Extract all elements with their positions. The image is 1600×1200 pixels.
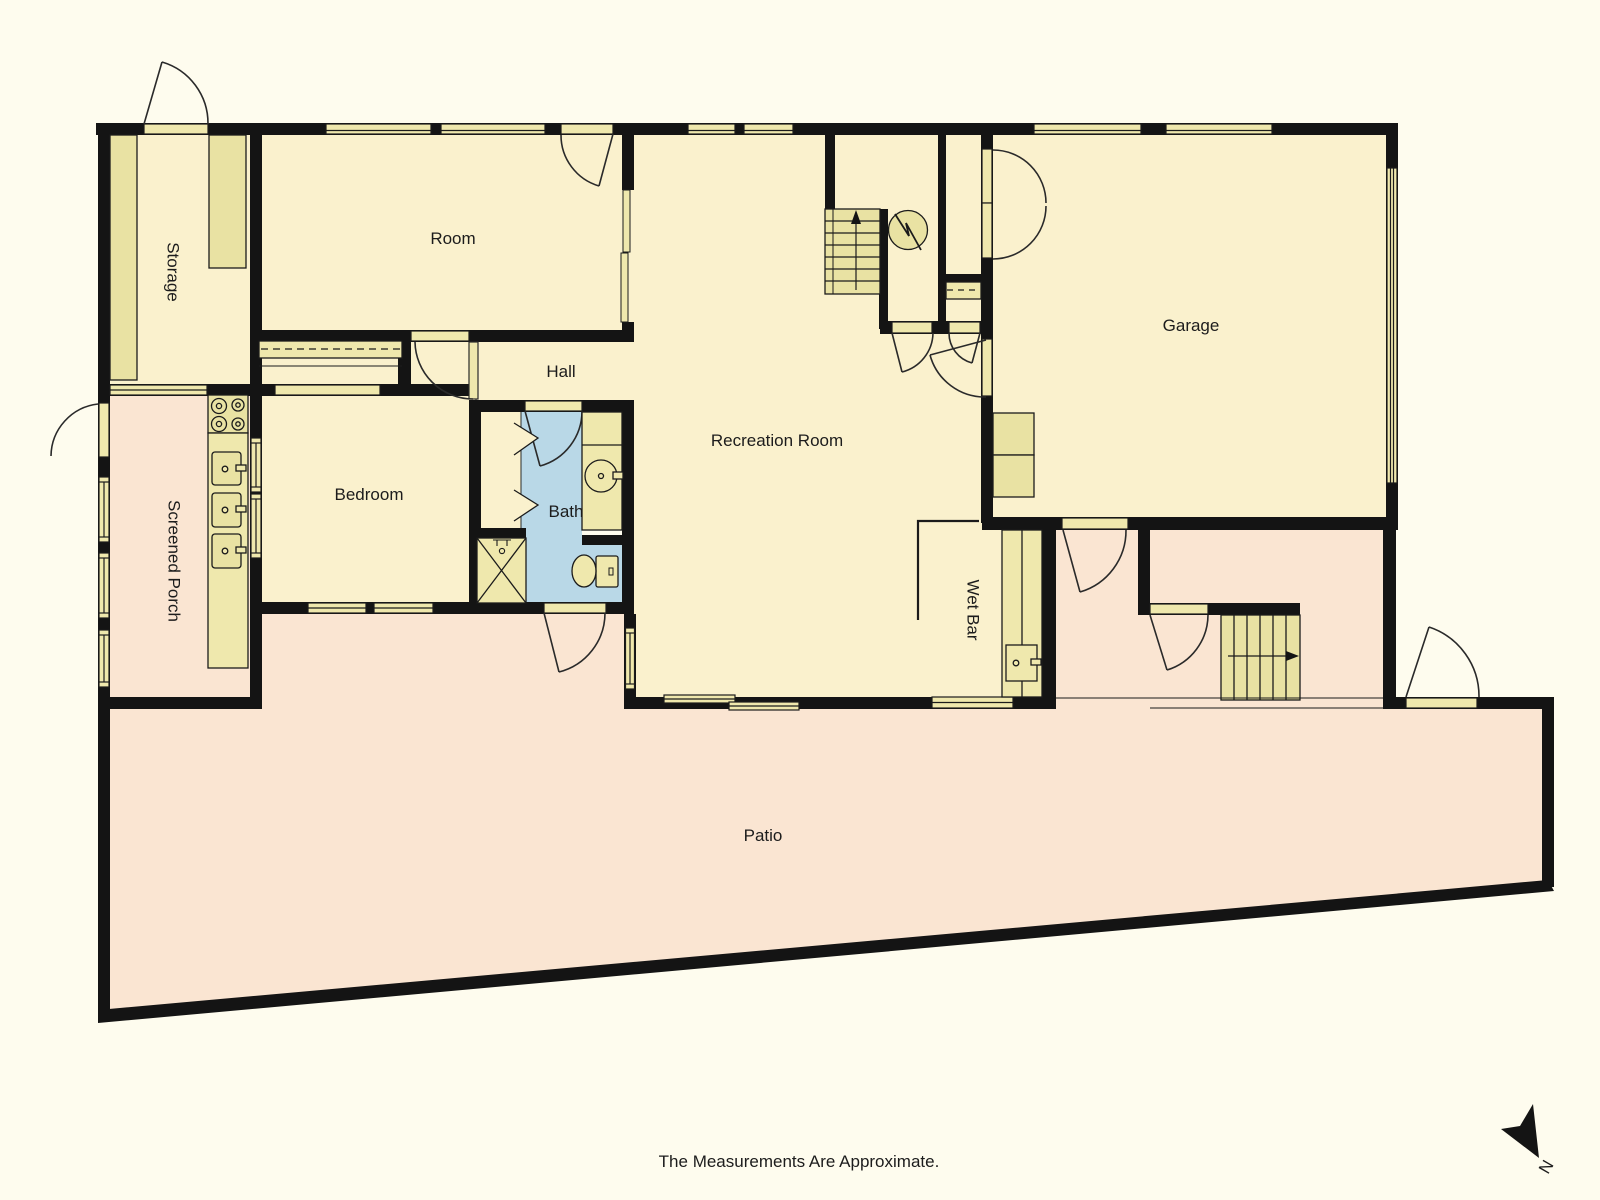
svg-text:Bath: Bath [549,502,584,521]
svg-text:Hall: Hall [546,362,575,381]
svg-text:Garage: Garage [1163,316,1220,335]
svg-text:Room: Room [430,229,475,248]
svg-text:The Measurements Are Approxima: The Measurements Are Approximate. [659,1152,940,1171]
svg-text:Wet Bar: Wet Bar [964,579,983,640]
svg-text:Storage: Storage [164,242,183,302]
svg-text:Bedroom: Bedroom [335,485,404,504]
svg-text:Recreation Room: Recreation Room [711,431,843,450]
svg-text:Patio: Patio [744,826,783,845]
svg-text:Screened Porch: Screened Porch [165,500,184,622]
